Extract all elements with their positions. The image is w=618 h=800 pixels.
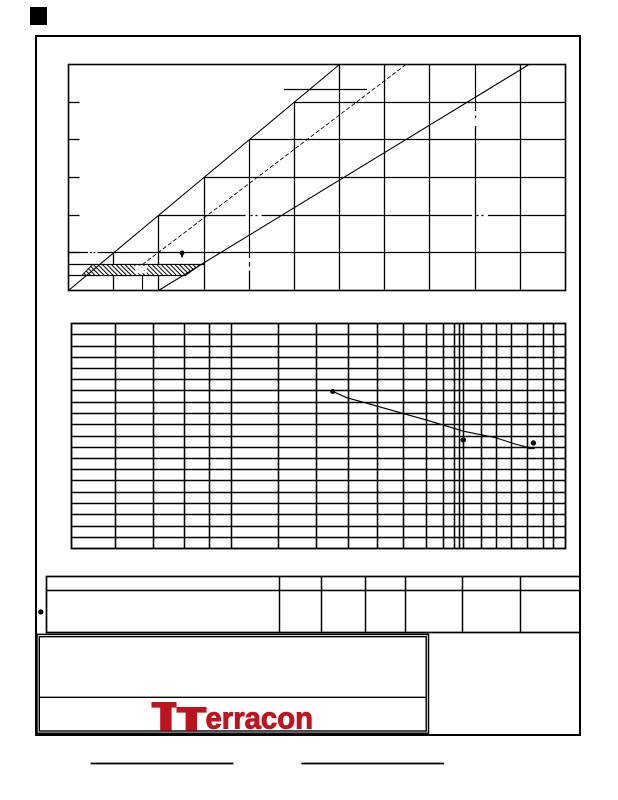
svg-text:erracon: erracon <box>206 701 314 735</box>
